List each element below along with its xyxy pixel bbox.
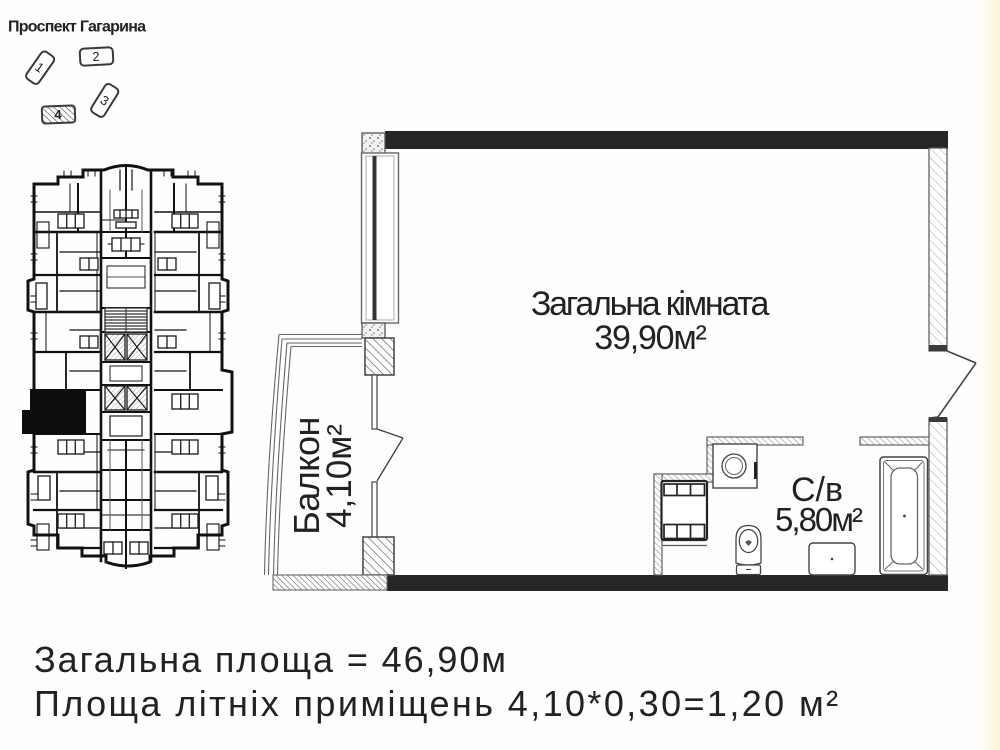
svg-text:Загальна площа = 46,90м: Загальна площа = 46,90м xyxy=(34,639,508,680)
svg-text:4: 4 xyxy=(54,107,63,122)
svg-text:5,80м²: 5,80м² xyxy=(775,501,863,538)
svg-text:Площа літніх приміщень 4,10*0,: Площа літніх приміщень 4,10*0,30=1,20 м² xyxy=(34,683,841,724)
svg-text:39,90м²: 39,90м² xyxy=(594,319,706,357)
svg-text:Проспект Гагарина: Проспект Гагарина xyxy=(8,19,146,36)
svg-text:4,10м²: 4,10м² xyxy=(320,424,359,528)
svg-text:2: 2 xyxy=(92,49,100,64)
svg-text:Загальна кімната: Загальна кімната xyxy=(531,285,770,323)
